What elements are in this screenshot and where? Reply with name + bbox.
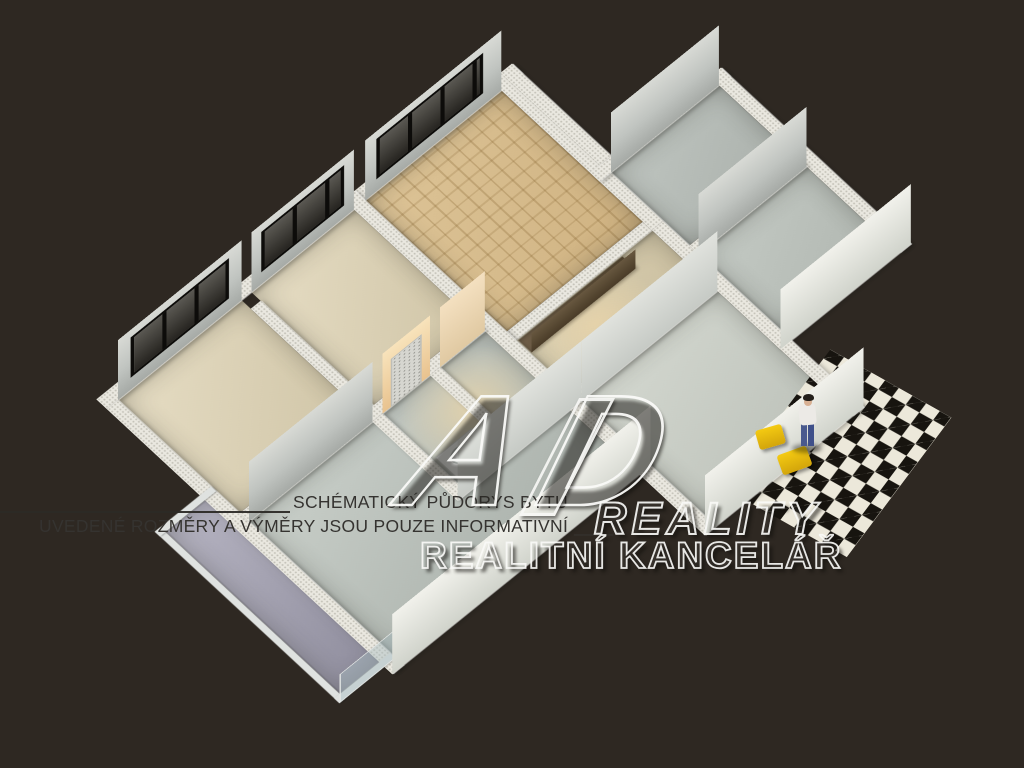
person-legs — [801, 423, 807, 446]
screenshot-canvas: SCHÉMATICKÝ PŮDORYS BYTU UVEDENÉ ROZMĚRY… — [0, 0, 1024, 768]
person-torso — [798, 403, 817, 425]
person-shadow — [792, 444, 822, 453]
person-hair — [803, 394, 814, 401]
person-legs-2 — [808, 424, 814, 446]
person-figure — [795, 394, 821, 454]
